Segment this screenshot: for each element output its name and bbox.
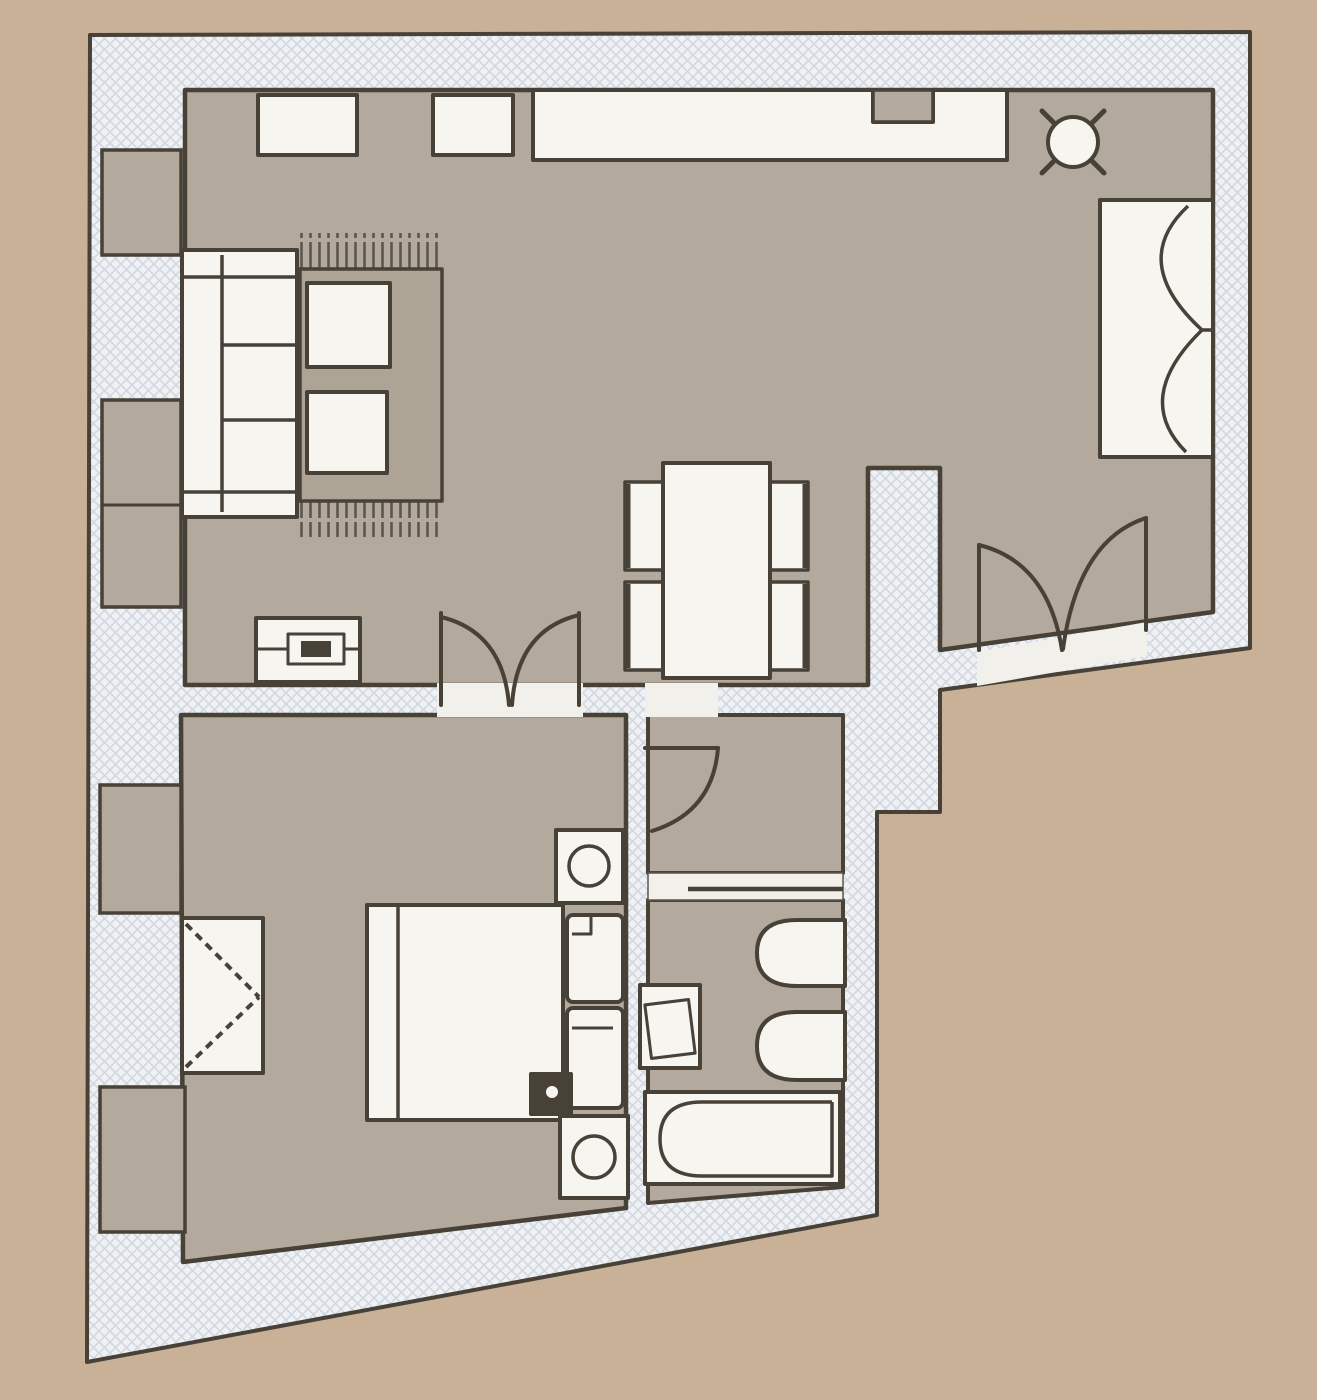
toilet: [757, 920, 845, 986]
bathroom-passage: [648, 873, 843, 900]
round-bistro-table: [1042, 111, 1104, 173]
hallway-door-opening: [645, 683, 718, 717]
tv-console: [256, 618, 360, 682]
nightstand-with-lamp: [556, 830, 623, 903]
casement-window-recess: [1100, 200, 1213, 457]
sofa: [182, 250, 297, 517]
pillow: [567, 915, 623, 1002]
wardrobe: [182, 918, 263, 1073]
pillow: [567, 1008, 623, 1108]
rug: [300, 233, 442, 537]
bedside-stool: [531, 1074, 571, 1114]
coffee-table: [307, 283, 390, 367]
nightstand-with-lamp: [560, 1116, 628, 1198]
window-bay-3: [100, 785, 181, 913]
dining-table: [663, 463, 770, 678]
window-bay-1: [102, 150, 181, 255]
lamp-icon: [573, 1136, 615, 1178]
kitchen-counter: [533, 90, 1007, 160]
lamp-icon: [569, 846, 609, 886]
floor-plan-canvas: [0, 0, 1317, 1400]
counter-sink-recess: [873, 90, 933, 122]
bathtub: [645, 1092, 840, 1184]
coffee-table: [307, 392, 387, 473]
washbasin: [640, 985, 700, 1068]
wall-cabinet: [433, 95, 513, 155]
dining-set: [625, 463, 808, 678]
window-bay-4: [100, 1087, 185, 1232]
sideboard: [258, 95, 357, 155]
bidet: [757, 1012, 845, 1080]
hallway-floor: [648, 715, 843, 873]
floor-plan-drawing: [0, 0, 1317, 1400]
